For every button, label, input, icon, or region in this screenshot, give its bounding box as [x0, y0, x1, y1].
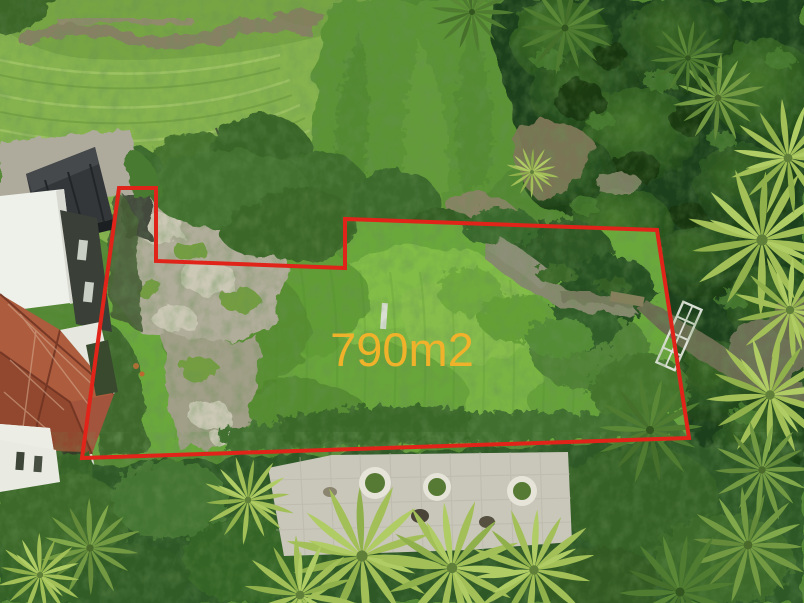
svg-text:790m2: 790m2 [330, 323, 474, 376]
